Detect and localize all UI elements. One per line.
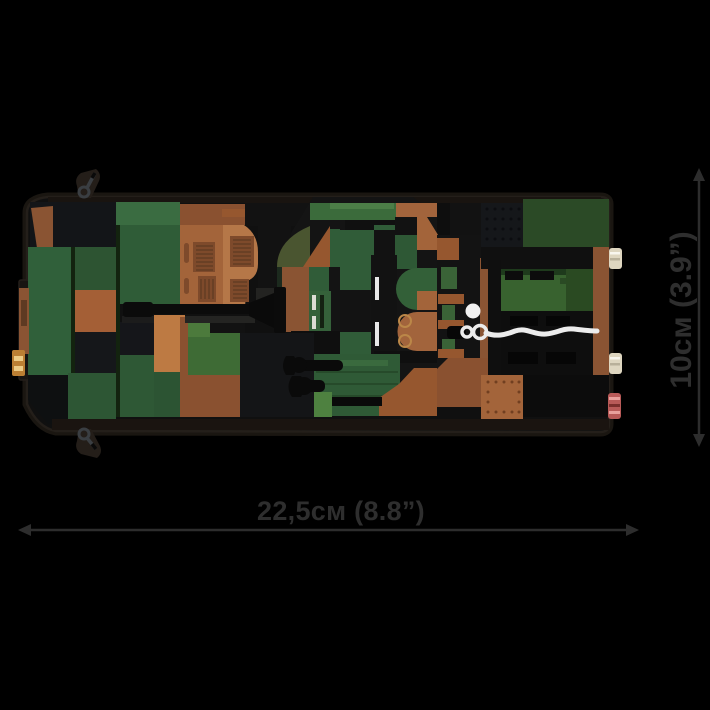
svg-text:10см (3.9”): 10см (3.9”) xyxy=(665,231,698,388)
svg-text:22,5см (8.8”): 22,5см (8.8”) xyxy=(257,496,425,526)
